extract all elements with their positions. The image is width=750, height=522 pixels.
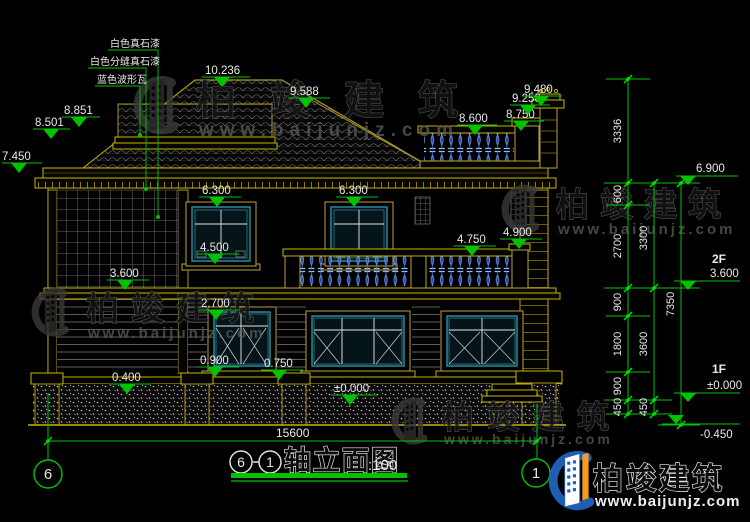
dim-value: 7350	[665, 292, 677, 316]
elevation-marker: 7.450	[2, 151, 42, 173]
svg-text:4.750: 4.750	[457, 234, 486, 246]
floor-marker: 1F ±0.000	[674, 362, 742, 402]
dim-value: 1800	[612, 332, 624, 356]
dim-value: 3600	[638, 332, 650, 356]
balcony-parapet	[283, 244, 530, 288]
axis-bubble-right: 1	[522, 459, 550, 487]
material-label: 蓝色波形瓦	[97, 73, 147, 86]
svg-text:4.900: 4.900	[503, 227, 532, 239]
svg-text:1F: 1F	[712, 362, 726, 376]
elevation-marker: 8.851	[62, 105, 100, 127]
svg-text:2F: 2F	[712, 252, 726, 266]
svg-text:9.588: 9.588	[290, 86, 319, 98]
material-label: 白色真石漆	[110, 37, 160, 50]
svg-text:8.600: 8.600	[459, 113, 488, 125]
svg-text:2.700: 2.700	[201, 298, 230, 310]
watermark-url: www.baijunjz.com	[198, 120, 459, 141]
dim-value: 3336	[612, 119, 624, 143]
svg-text:9.480: 9.480	[524, 84, 553, 96]
dim-value: 450	[638, 398, 650, 416]
brand-url: www.baijunjz.com	[594, 493, 740, 510]
svg-text:0.750: 0.750	[264, 358, 293, 370]
elevation-marker: 6.900	[676, 163, 738, 185]
svg-text:±0.000: ±0.000	[334, 383, 369, 395]
dim-value: 450	[612, 398, 624, 416]
dim-value: 900	[612, 377, 624, 395]
watermark-text: 柏竣建筑	[442, 399, 622, 435]
svg-text:0.900: 0.900	[200, 355, 229, 367]
svg-text:6.300: 6.300	[202, 185, 231, 197]
svg-text:3.600: 3.600	[710, 268, 739, 280]
floor-marker: 2F 3.600	[674, 252, 740, 290]
dim-value: 3300	[638, 226, 650, 250]
elevation-drawing: 柏竣建筑 www.baijunjz.com 柏竣建筑 www.baijunjz.…	[0, 0, 750, 522]
watermark-text: 柏竣建筑	[196, 79, 492, 123]
svg-text:6.900: 6.900	[696, 163, 725, 175]
dimension-ladder: 3336 600 2700 3300 900 1800 3600 900 450…	[604, 75, 742, 441]
title-axis-start: 6	[237, 454, 245, 470]
main-cornice	[35, 168, 556, 188]
brand-footer: 柏竣建筑 www.baijunjz.com	[553, 453, 740, 510]
elevation-marker: 8.501	[33, 117, 70, 139]
dim-value: 900	[612, 293, 624, 311]
watermark-logo-icon	[505, 186, 535, 231]
svg-text:-0.450: -0.450	[700, 429, 733, 441]
watermark-url: www.baijunjz.com	[443, 431, 613, 447]
svg-text:6.300: 6.300	[339, 185, 368, 197]
watermark-text: 柏竣建筑	[86, 290, 266, 327]
title-underline	[231, 473, 407, 478]
cad-elevation-canvas: 柏竣建筑 www.baijunjz.com 柏竣建筑 www.baijunjz.…	[0, 0, 750, 522]
svg-text:0.400: 0.400	[112, 372, 141, 384]
axis-bubble-left: 6	[34, 460, 62, 488]
window-1f-center	[306, 311, 410, 371]
svg-text:4.500: 4.500	[200, 242, 229, 254]
title-scale: :100	[368, 457, 397, 474]
window-1f-right	[441, 311, 523, 371]
svg-text:8.851: 8.851	[64, 105, 93, 117]
svg-text:8.501: 8.501	[35, 117, 64, 129]
dim-value: 600	[612, 185, 624, 203]
svg-text:7.450: 7.450	[2, 151, 31, 163]
title-axis-end: 1	[266, 454, 274, 470]
svg-text:±0.000: ±0.000	[707, 380, 742, 392]
watermark-logo-icon	[35, 289, 65, 334]
axis-number: 1	[532, 465, 540, 482]
dim-value: 15600	[276, 426, 310, 440]
drawing-title: 6 1 轴立面图 :100	[230, 445, 408, 481]
material-label: 白色分缝真石漆	[90, 55, 160, 68]
wall-vent	[415, 197, 430, 224]
brand-name: 柏竣建筑	[593, 462, 725, 496]
watermark-url: www.baijunjz.com	[87, 325, 265, 342]
svg-text:10.236: 10.236	[205, 65, 240, 77]
dim-value: 2700	[612, 234, 624, 258]
brand-logo-icon	[553, 453, 590, 507]
axis-number: 6	[44, 466, 52, 483]
elevation-marker: -0.450	[662, 415, 740, 441]
svg-text:3.600: 3.600	[110, 268, 139, 280]
